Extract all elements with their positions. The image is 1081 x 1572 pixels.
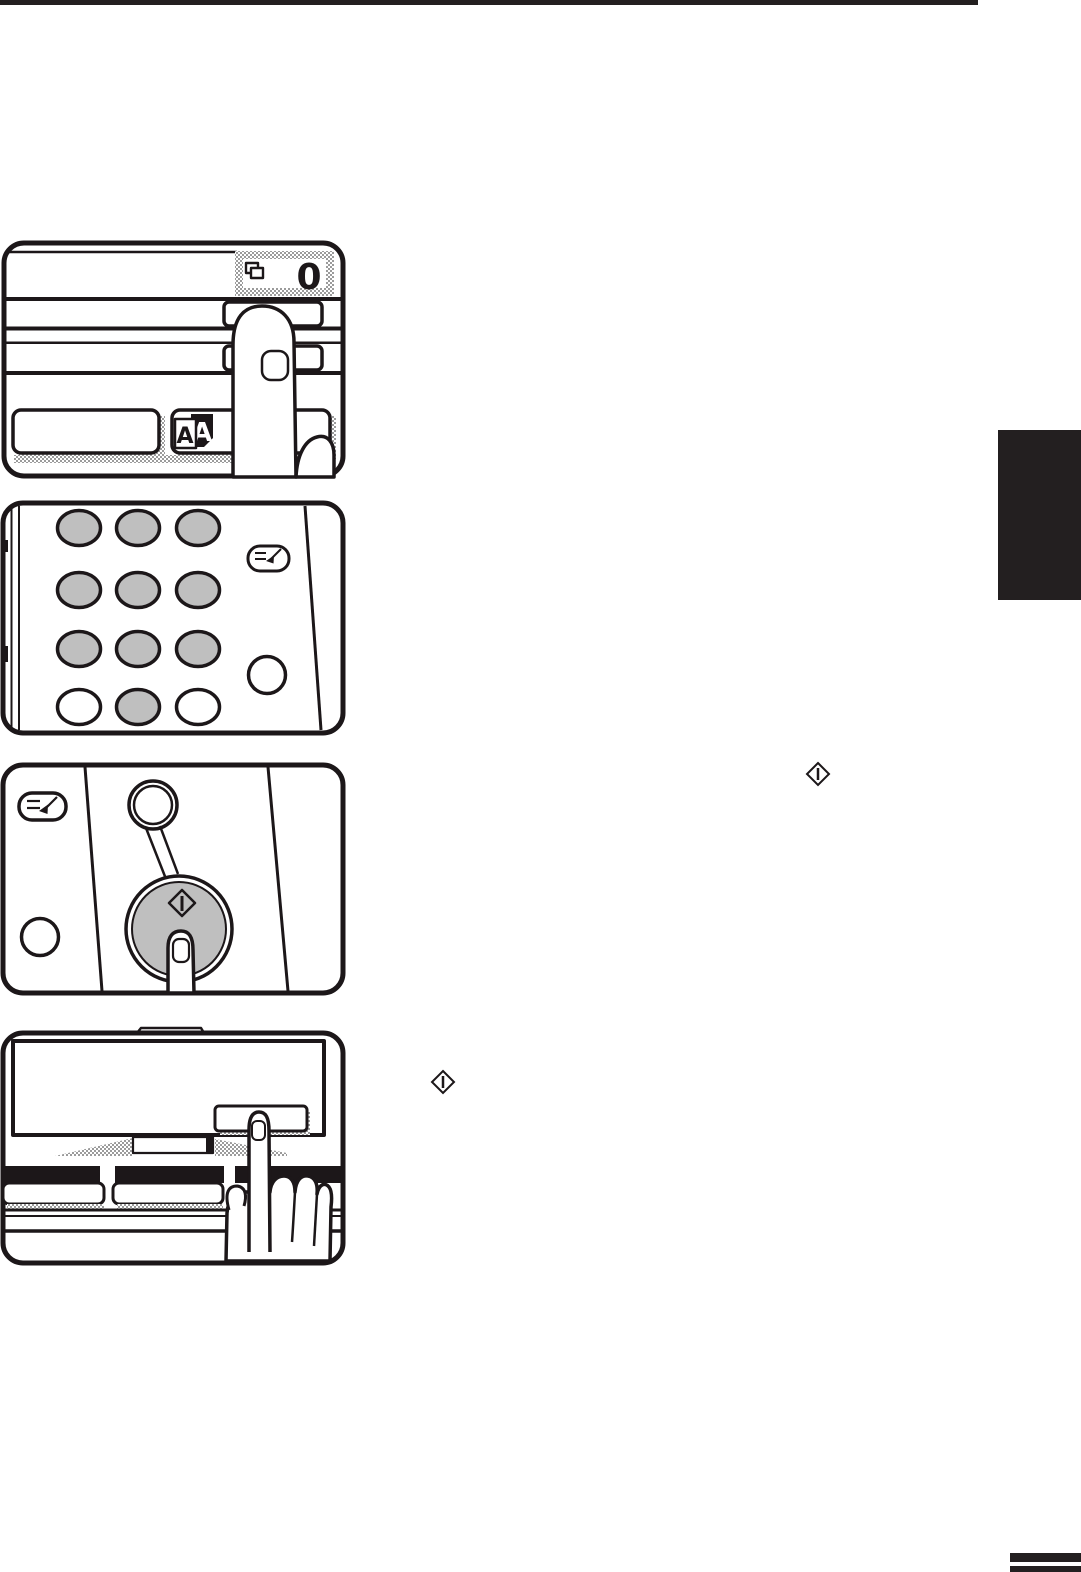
page-artwork: 0 A A <box>0 0 1081 1572</box>
figure-keypad-panel <box>3 503 343 733</box>
interrupt-key <box>19 793 66 820</box>
hard-key-left <box>3 1183 104 1204</box>
numeric-key <box>177 573 220 608</box>
numeric-key <box>117 632 160 667</box>
start-key-symbol-inline-1 <box>807 763 829 785</box>
section-edge-tab <box>998 430 1081 600</box>
figure-display-panel: 0 A A <box>4 243 343 477</box>
fingernail <box>262 351 288 380</box>
top-rule <box>0 0 978 5</box>
lower-left-key <box>13 410 159 453</box>
fingernail <box>252 1121 265 1140</box>
footer-bar-2 <box>1010 1566 1081 1572</box>
manual-page: 0 A A <box>0 0 1081 1572</box>
numeric-key <box>117 573 160 608</box>
original-to-copy-icon: A A <box>175 414 213 449</box>
numeric-key <box>177 632 220 667</box>
footer-bar-1 <box>1010 1553 1081 1562</box>
clear-key <box>249 657 286 694</box>
numeric-key <box>117 690 160 725</box>
numeric-key <box>58 690 101 725</box>
numeric-key <box>58 511 101 546</box>
figure-start-panel <box>3 765 343 993</box>
hard-key-center <box>113 1183 223 1204</box>
numeric-key <box>177 511 220 546</box>
fingernail <box>173 939 189 962</box>
interrupt-key <box>248 546 289 571</box>
copy-counter-value: 0 <box>296 257 321 298</box>
numeric-key <box>117 511 160 546</box>
key-band-segment <box>3 1166 100 1183</box>
numeric-key <box>58 632 101 667</box>
clear-key <box>22 919 59 956</box>
key-band-segment <box>115 1166 224 1183</box>
start-key-symbol-inline-2 <box>432 1071 454 1093</box>
numeric-key <box>177 690 220 725</box>
panel-outline <box>3 503 343 733</box>
svg-text:A: A <box>176 424 193 449</box>
figure-touch-panel <box>3 1028 343 1263</box>
pointing-finger <box>233 306 296 477</box>
numeric-key <box>58 573 101 608</box>
